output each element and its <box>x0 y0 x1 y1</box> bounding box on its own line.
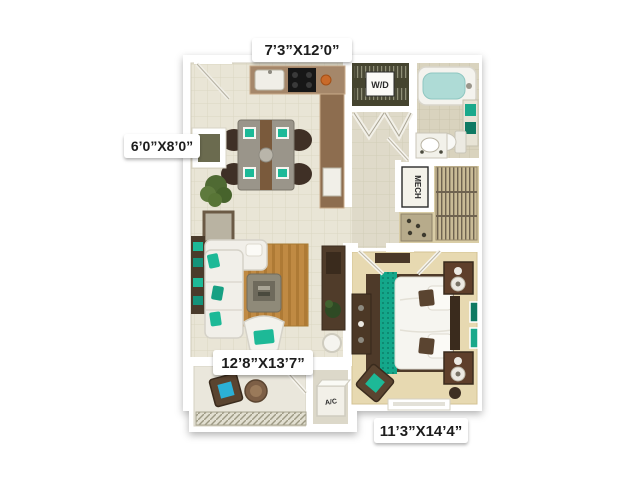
balcony-table <box>245 380 267 402</box>
label-bedroom-dim: 11’3”X14’4” <box>374 418 468 443</box>
shelf-decor <box>193 278 203 287</box>
tub-faucet <box>466 83 472 89</box>
bathtub <box>418 67 476 105</box>
dresser <box>352 294 371 354</box>
kitchen-faucet <box>268 70 272 74</box>
burner <box>306 72 312 78</box>
bedroom-dim-text: 11’3”X14’4” <box>380 423 463 440</box>
fruit-bowl <box>321 75 331 85</box>
balcony-chair <box>209 373 243 407</box>
nightstand-top <box>444 262 473 294</box>
burner <box>292 82 298 88</box>
washer-dryer-label: W/D <box>371 80 389 90</box>
mech-closet: MECH <box>396 162 434 212</box>
label-kitchen-dim: 7’3”X12’0” <box>252 38 352 62</box>
nightstand-bottom <box>444 352 473 384</box>
accent-pillow <box>418 289 435 306</box>
bedside-table <box>449 387 461 399</box>
shelf-decor <box>193 296 203 305</box>
centerpiece <box>259 148 273 162</box>
mech-label: MECH <box>413 175 422 199</box>
console-plant <box>325 300 333 308</box>
burner <box>306 82 312 88</box>
throw-pillow <box>209 311 222 326</box>
floorplan-drawing: W/D MECH <box>0 0 640 480</box>
ac-closet: A/C <box>317 380 350 416</box>
throw-pillow <box>246 244 262 256</box>
floor-lamp <box>323 334 341 352</box>
hall-opening-floor <box>343 207 352 243</box>
media-console <box>322 246 345 330</box>
kitchen-dim-text: 7’3”X12’0” <box>264 42 339 59</box>
shelf-decor <box>193 242 203 251</box>
floorplan-canvas: W/D MECH <box>0 0 640 480</box>
accent-pillow <box>418 337 435 354</box>
accent-chair-living <box>244 316 284 353</box>
living-dim-text: 12’8”X13’7” <box>221 355 304 372</box>
side-table <box>204 212 233 242</box>
patio-dim-text: 6’0”X8’0” <box>131 138 193 154</box>
stove <box>288 68 316 92</box>
label-living-dim: 12’8”X13’7” <box>213 350 313 375</box>
teal-bed-runner <box>380 272 397 374</box>
headboard <box>450 296 460 350</box>
shelf-decor <box>193 258 203 267</box>
vanity-sink <box>416 133 447 158</box>
bedroom-window <box>388 399 450 410</box>
balcony-railing <box>196 412 306 425</box>
dishwasher <box>323 168 341 196</box>
ottoman <box>247 274 281 312</box>
burner <box>292 72 298 78</box>
label-patio-dim: 6’0”X8’0” <box>124 134 200 158</box>
low-dresser <box>375 253 410 263</box>
